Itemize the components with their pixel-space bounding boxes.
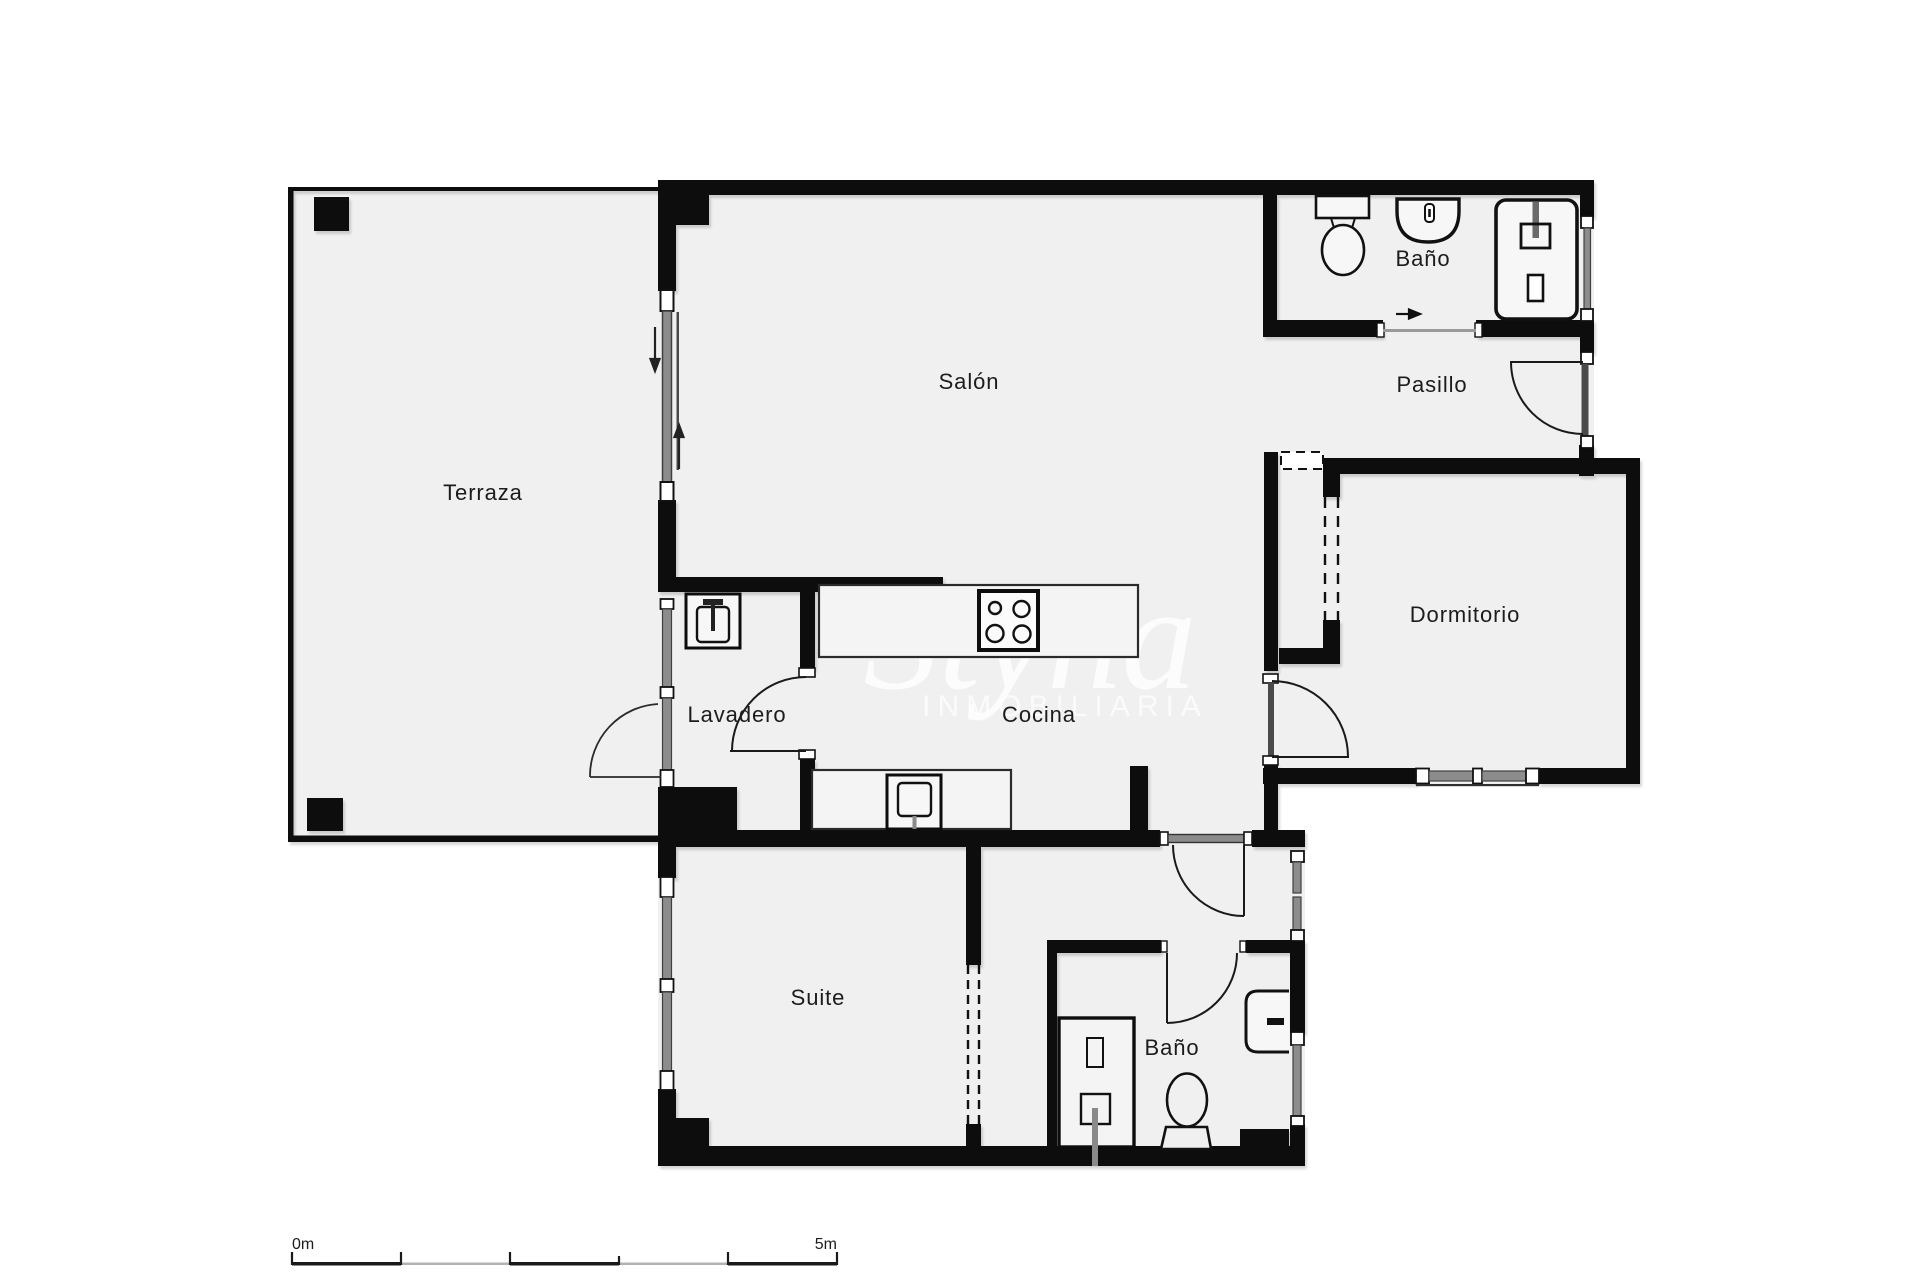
svg-text:Terraza: Terraza xyxy=(443,480,523,505)
svg-text:5m: 5m xyxy=(815,1236,837,1253)
svg-text:Pasillo: Pasillo xyxy=(1396,372,1467,397)
svg-text:Baño: Baño xyxy=(1396,246,1451,271)
svg-text:0m: 0m xyxy=(292,1236,314,1253)
svg-text:Suite: Suite xyxy=(791,985,846,1010)
svg-text:Cocina: Cocina xyxy=(1002,702,1076,727)
svg-text:Lavadero: Lavadero xyxy=(688,702,787,727)
svg-text:Dormitorio: Dormitorio xyxy=(1410,602,1520,627)
svg-text:Salón: Salón xyxy=(939,369,1000,394)
svg-text:Baño: Baño xyxy=(1145,1035,1200,1060)
